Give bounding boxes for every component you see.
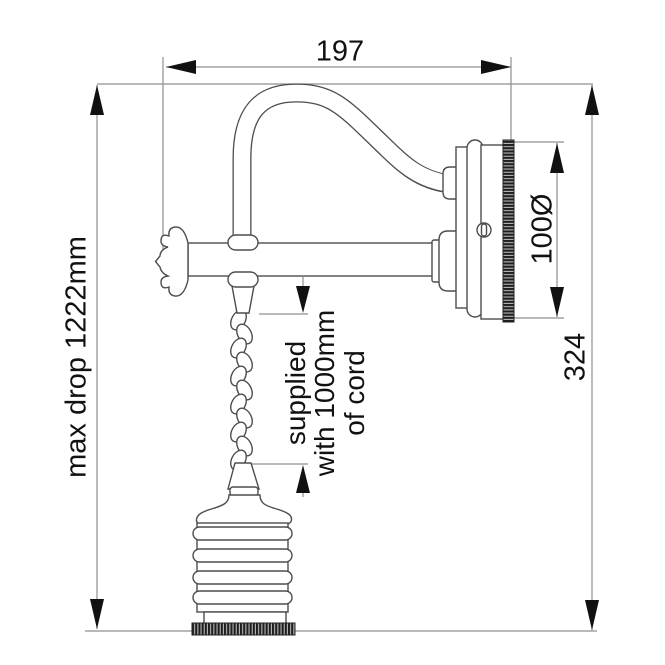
- lampholder-rib-2: [193, 549, 292, 562]
- cord-note-line-1: supplied: [281, 310, 310, 477]
- arrow-maxdrop-top: [90, 85, 104, 115]
- mounting-arm: [188, 243, 458, 276]
- finial: [156, 227, 189, 296]
- arm-collar-upper: [228, 235, 258, 250]
- cord-note-line-3: of cord: [340, 310, 369, 477]
- lampholder-rib-1: [193, 527, 292, 540]
- twisted-cord: [228, 308, 256, 473]
- lampholder-rib-3: [193, 571, 292, 584]
- arrow-maxdrop-bottom: [90, 599, 104, 629]
- dim-width-label: 197: [316, 38, 364, 67]
- lampholder: [192, 463, 295, 635]
- dim-height-label: 324: [562, 333, 591, 381]
- arrow-100-top: [550, 143, 564, 173]
- lampholder-knurled-ring: [192, 623, 295, 635]
- arrow-197-right: [481, 60, 511, 74]
- arrow-324-bottom: [585, 600, 599, 630]
- plate-knurled-rim: [503, 140, 514, 322]
- technical-drawing-canvas: 197 max drop 1222mm 100Ø 324 supplied wi…: [0, 0, 665, 665]
- lampholder-dome: [196, 495, 291, 525]
- dim-max-drop-label: max drop 1222mm: [63, 236, 92, 478]
- dim-diameter-label: 100Ø: [529, 194, 558, 265]
- cord-note-line-2: with 1000mm: [310, 310, 339, 477]
- arrow-100-bottom: [550, 287, 564, 317]
- lampholder-base-step: [204, 612, 286, 624]
- set-screw-slot: [482, 224, 487, 236]
- wall-plate: [432, 140, 514, 322]
- plate-front-band: [456, 147, 468, 308]
- cord-note: supplied with 1000mm of cord: [281, 310, 369, 477]
- arm-wall-connector: [439, 231, 458, 291]
- cord-grip-cone-top: [232, 286, 254, 313]
- gooseneck-tube: [242, 93, 452, 250]
- arrow-324-top: [585, 85, 599, 115]
- lampholder-rib-4: [193, 591, 292, 604]
- arrow-197-left: [166, 60, 196, 74]
- arm-collar-lower: [228, 272, 258, 287]
